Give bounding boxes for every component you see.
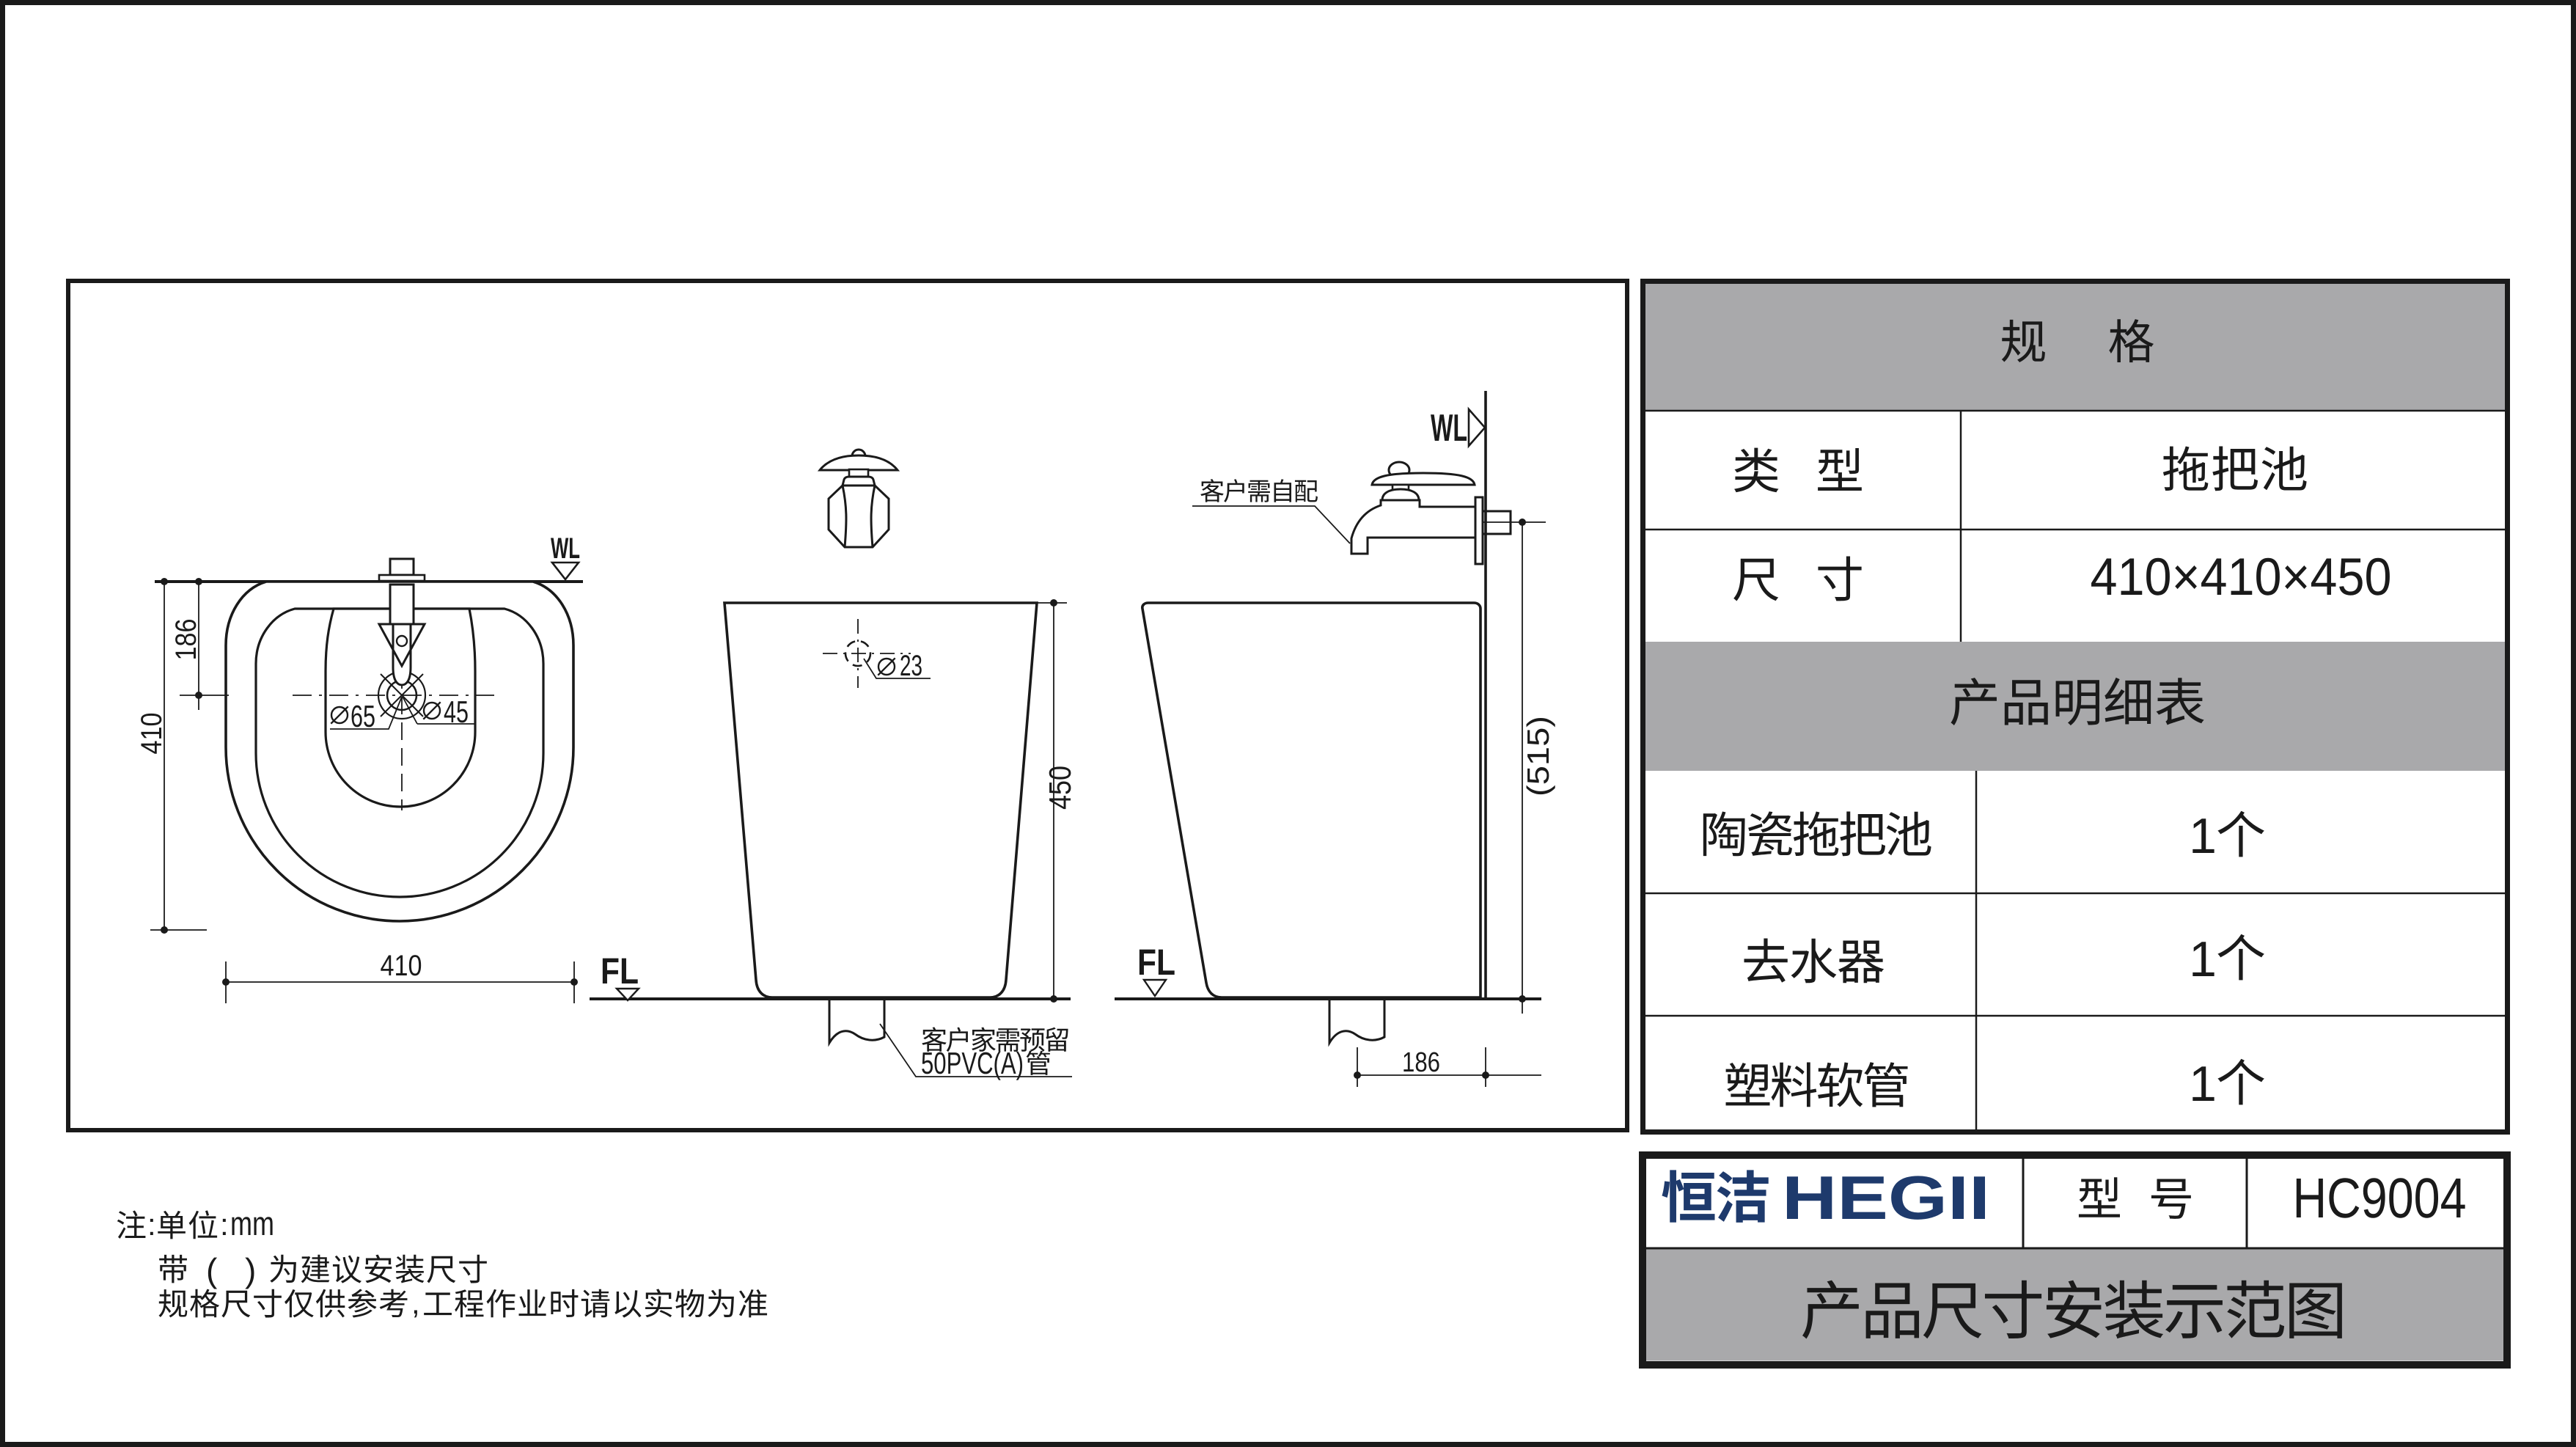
svg-text:WL: WL xyxy=(551,532,580,565)
svg-text:410×410×450: 410×410×450 xyxy=(2091,548,2392,607)
svg-text:mm: mm xyxy=(230,1204,274,1242)
svg-text:65: 65 xyxy=(351,699,375,733)
svg-text:FL: FL xyxy=(1137,942,1175,983)
svg-text:): ) xyxy=(245,1251,256,1289)
svg-text:450: 450 xyxy=(1043,766,1077,810)
svg-text::: : xyxy=(220,1207,229,1242)
svg-text:,: , xyxy=(411,1286,420,1320)
svg-text:186: 186 xyxy=(1402,1047,1440,1078)
svg-text::: : xyxy=(147,1207,156,1242)
svg-text:(: ( xyxy=(206,1251,218,1289)
svg-text:1: 1 xyxy=(2189,808,2217,864)
svg-text:410: 410 xyxy=(381,950,422,982)
svg-text:WL: WL xyxy=(1431,407,1467,450)
svg-text:FL: FL xyxy=(601,950,639,992)
svg-text:1: 1 xyxy=(2189,931,2217,987)
svg-text:HC9004: HC9004 xyxy=(2293,1167,2467,1230)
svg-text:1: 1 xyxy=(2189,1056,2217,1112)
svg-text:50PVC(A): 50PVC(A) xyxy=(921,1046,1024,1080)
svg-text:410: 410 xyxy=(136,713,168,755)
svg-text:23: 23 xyxy=(900,650,922,682)
svg-text:HEGII: HEGII xyxy=(1782,1163,1990,1232)
svg-text:(515): (515) xyxy=(1521,716,1555,796)
svg-text:186: 186 xyxy=(170,619,202,661)
